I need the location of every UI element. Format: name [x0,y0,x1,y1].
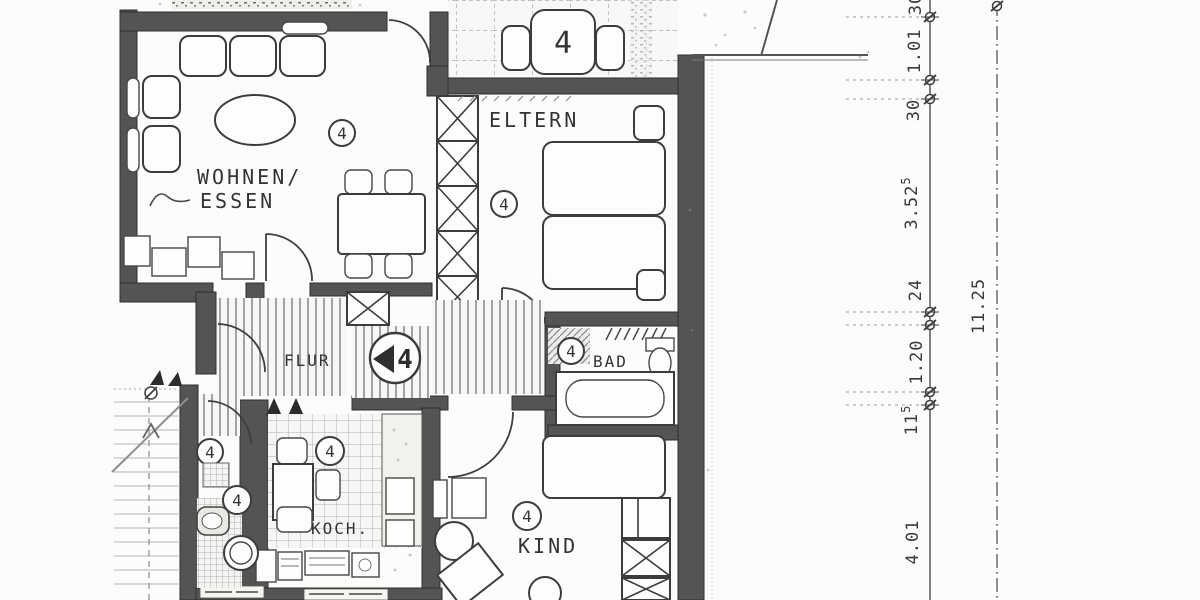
room-label-koch: KOCH. [311,519,369,538]
bottom-label-strip [304,589,388,600]
floor-plan-scan: 4 [0,0,1200,600]
upper-railing-strip [172,0,352,9]
svg-text:4: 4 [337,124,347,143]
wardrobe-x-box [437,186,478,231]
unit-marker-wohnen: 4 [329,120,355,146]
room-label-flur: FLUR [284,351,331,370]
balcony-chair-right [596,26,624,70]
wardrobe-column [437,96,478,318]
svg-text:4: 4 [566,342,576,361]
wardrobe-x-box [437,231,478,276]
stool [529,577,561,600]
svg-text:4: 4 [522,507,532,526]
unit-marker-kind: 4 [513,502,541,530]
balcony-edge-texture [630,0,652,78]
flur-floor-stripes [217,298,347,396]
dim-label-4: 24 [906,279,926,301]
balcony-table-number: 4 [554,26,572,61]
bed [543,142,665,215]
wc-floor-stripes [200,394,240,436]
kitchen-chair [277,438,307,464]
unit-marker-wc-upper: 4 [197,439,223,465]
flur-floor-stripes [432,300,544,394]
room-label-essen: ESSEN [200,189,275,213]
svg-text:4: 4 [397,345,413,375]
unit-arrow-logo: 4 [370,333,420,383]
unit-marker-bad: 4 [558,338,584,364]
dim-label-1: 1.01 [905,29,925,74]
room-label-wohnen: WOHNEN/ [197,165,302,189]
kitchen-chair [316,470,340,500]
wc-toilet [197,507,229,535]
nightstand [637,270,665,300]
wardrobe-x-box [437,96,478,141]
kind-wardrobe [622,498,670,600]
room-label-eltern: ELTERN [489,108,579,132]
flur-x-box [347,292,389,325]
nightstand [634,106,664,140]
balcony: 4 [448,0,678,78]
wc-sink [203,463,229,487]
unit-marker-eltern: 4 [491,191,517,217]
svg-text:4: 4 [325,442,335,461]
kitchen-chair [277,507,312,532]
balcony-chair-left [502,26,530,70]
washing-machine [224,536,258,570]
floor-plan-drawing: 4 [0,0,1200,600]
wardrobe-x-box [437,141,478,186]
kind-bed [543,436,665,498]
bathtub [556,372,674,425]
svg-text:4: 4 [499,195,509,214]
svg-text:4: 4 [205,443,215,462]
svg-text:4: 4 [232,491,242,510]
dim-label-2: 30 [904,99,924,121]
unit-marker-koch: 4 [316,437,344,465]
dim-label-total: 11.25 [969,278,989,334]
dim-label-7: 4.01 [903,520,923,565]
dim-label-5: 1.20 [907,340,927,385]
dim-label-0: 30 [906,0,926,15]
room-label-bad: BAD [593,352,628,371]
desk [433,478,486,518]
room-label-kind: KIND [518,534,578,558]
coffee-table [215,95,295,145]
